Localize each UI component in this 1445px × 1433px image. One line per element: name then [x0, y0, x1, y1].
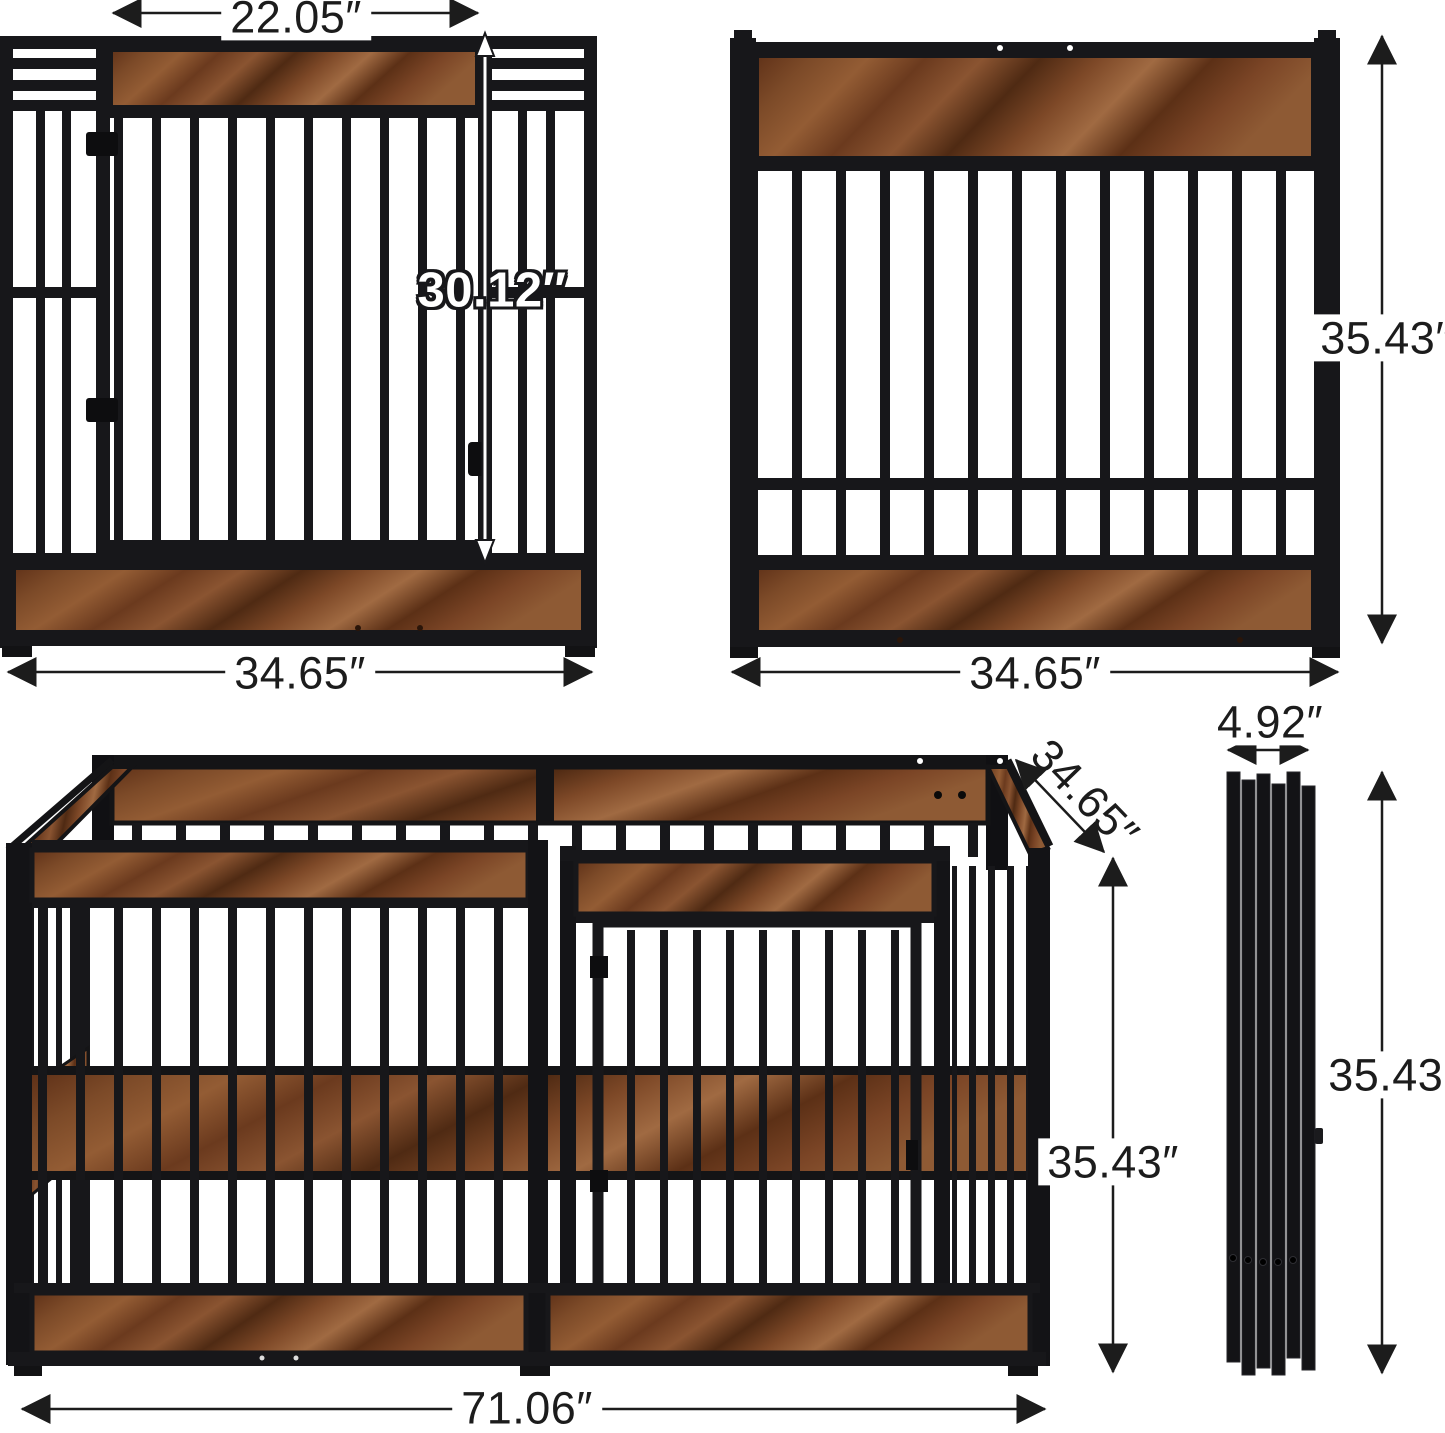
- dim-door-height-label: 30.12″: [408, 265, 575, 316]
- door-hinge: [86, 398, 118, 422]
- pen-door-hinge: [590, 1170, 608, 1192]
- dim-pen-width-label: 71.06″: [452, 1384, 602, 1431]
- folded-panels-view: [1227, 772, 1323, 1375]
- side-panel-bottom-wood: [756, 567, 1314, 633]
- assembled-pen-view: [6, 755, 1050, 1376]
- product-dimension-image: 22.05″ 30.12″ 34.65″ 34.65″ 35.43″ 34.65…: [0, 0, 1445, 1427]
- door-hinge: [86, 132, 118, 156]
- dim-side-panel-width-label: 34.65″: [960, 649, 1110, 696]
- dim-side-panel-height-label: 35.43″: [1311, 314, 1445, 361]
- dim-folded-height-label: 35.43″: [1319, 1051, 1445, 1098]
- pen-door-wood: [576, 861, 934, 914]
- door-wood-panel: [110, 49, 478, 108]
- dim-door-width-label: 22.05″: [221, 0, 371, 41]
- pen-door-latch: [906, 1140, 918, 1170]
- pen-front-wood: [32, 850, 528, 900]
- side-panel-view: [730, 30, 1340, 658]
- folded-panels-knob: [1315, 1128, 1323, 1144]
- front-panel-view: [0, 36, 597, 657]
- front-panel-left-section: [13, 58, 96, 555]
- dim-front-panel-width-label: 34.65″: [225, 649, 375, 696]
- pen-door-hinge: [590, 956, 608, 978]
- pen-bottom-wood: [548, 1293, 1030, 1353]
- side-panel-top-wood: [756, 55, 1314, 159]
- dim-pen-height-label: 35.43″: [1038, 1138, 1188, 1185]
- dim-folded-depth-label: 4.92″: [1208, 698, 1332, 745]
- front-panel-bottom-wood: [13, 567, 584, 633]
- pen-bottom-wood: [32, 1293, 526, 1353]
